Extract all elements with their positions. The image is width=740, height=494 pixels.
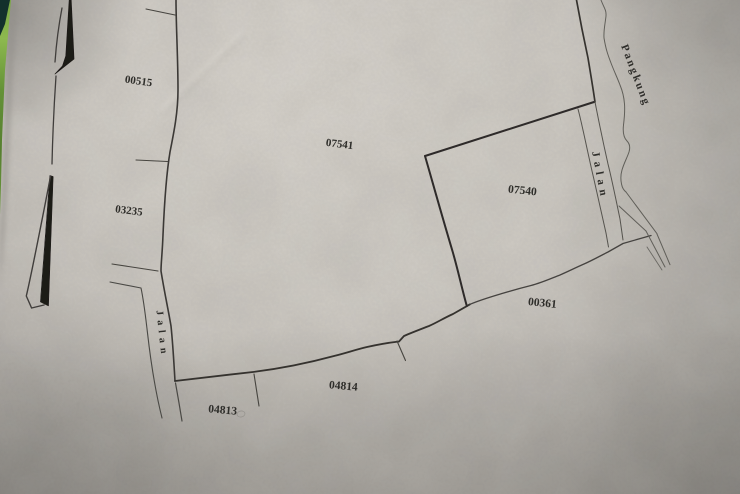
svg-text:04814: 04814: [329, 379, 359, 393]
svg-text:04813: 04813: [208, 403, 238, 417]
